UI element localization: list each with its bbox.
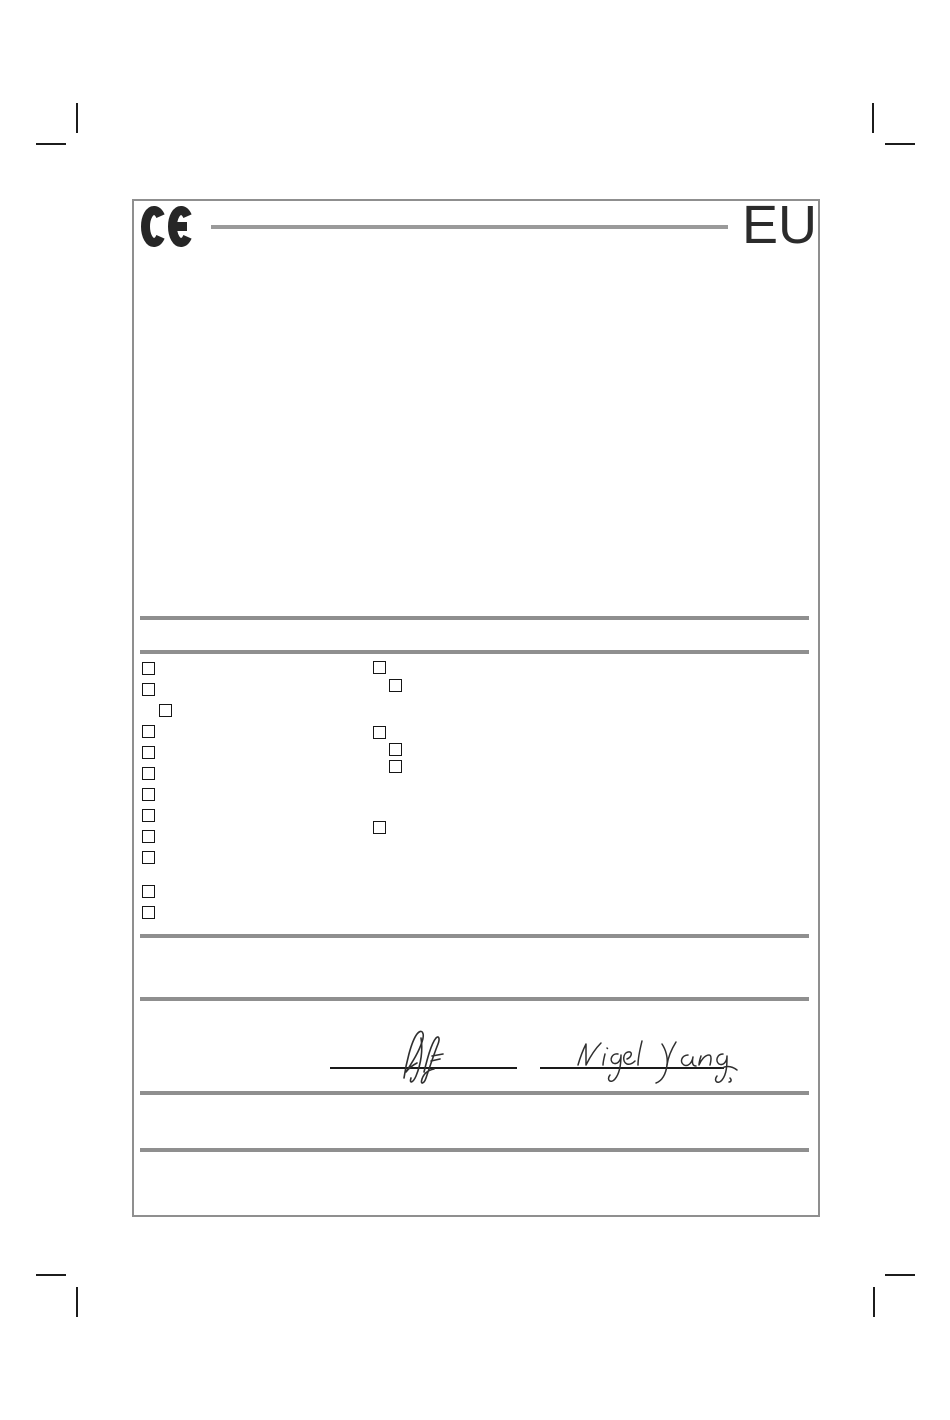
checkbox-left-column-3[interactable] bbox=[159, 704, 172, 717]
checkbox-middle-column-1[interactable] bbox=[373, 661, 386, 674]
crop-mark-bottom-left-vertical bbox=[76, 1287, 78, 1317]
crop-mark-bottom-left-horizontal bbox=[36, 1274, 66, 1276]
checkbox-middle-column-3[interactable] bbox=[373, 726, 386, 739]
checkbox-left-column-4[interactable] bbox=[142, 725, 155, 738]
crop-mark-top-right-vertical bbox=[872, 103, 874, 133]
eu-label: EU bbox=[742, 198, 817, 252]
ce-marking-logo bbox=[140, 205, 195, 248]
section-rule-3 bbox=[140, 934, 809, 938]
crop-mark-bottom-right-horizontal bbox=[885, 1274, 915, 1276]
section-rule-1 bbox=[140, 616, 809, 620]
checkbox-left-column-2[interactable] bbox=[142, 683, 155, 696]
checkbox-left-column-12[interactable] bbox=[142, 906, 155, 919]
section-rule-4 bbox=[140, 997, 809, 1001]
crop-mark-top-left-vertical bbox=[76, 103, 78, 133]
section-rule-5 bbox=[140, 1091, 809, 1095]
section-rule-6 bbox=[140, 1148, 809, 1152]
checkbox-left-column-5[interactable] bbox=[142, 746, 155, 759]
checkbox-left-column-10[interactable] bbox=[142, 851, 155, 864]
checkbox-left-column-9[interactable] bbox=[142, 830, 155, 843]
crop-mark-top-right-horizontal bbox=[885, 143, 915, 145]
header-divider-line bbox=[211, 225, 728, 229]
checkbox-middle-column-5[interactable] bbox=[389, 760, 402, 773]
checkbox-left-column-8[interactable] bbox=[142, 809, 155, 822]
checkbox-left-column-11[interactable] bbox=[142, 885, 155, 898]
section-rule-2 bbox=[140, 650, 809, 654]
signature-right bbox=[572, 1034, 740, 1086]
crop-mark-top-left-horizontal bbox=[36, 143, 66, 145]
checkbox-left-column-6[interactable] bbox=[142, 767, 155, 780]
crop-mark-bottom-right-vertical bbox=[873, 1287, 875, 1317]
checkbox-left-column-1[interactable] bbox=[142, 662, 155, 675]
checkbox-middle-column-4[interactable] bbox=[389, 743, 402, 756]
checkbox-left-column-7[interactable] bbox=[142, 788, 155, 801]
checkbox-middle-column-6[interactable] bbox=[373, 821, 386, 834]
signature-left bbox=[396, 1028, 454, 1088]
checkbox-middle-column-2[interactable] bbox=[389, 679, 402, 692]
document-page: EU bbox=[0, 0, 950, 1420]
